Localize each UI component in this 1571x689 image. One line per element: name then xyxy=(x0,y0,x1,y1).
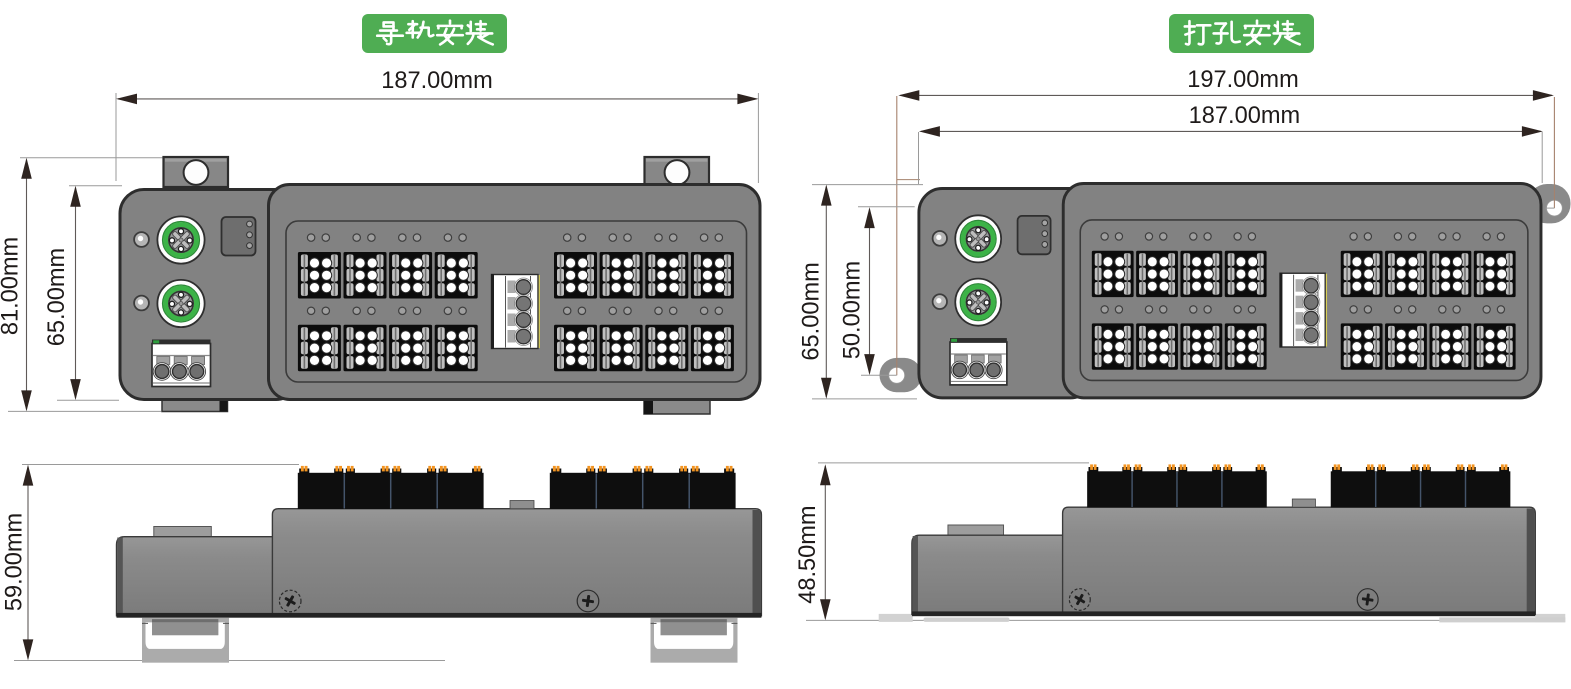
svg-text:65.00mm: 65.00mm xyxy=(799,262,825,360)
svg-text:197.00mm: 197.00mm xyxy=(1187,67,1298,93)
svg-text:187.00mm: 187.00mm xyxy=(381,68,492,94)
svg-text:187.00mm: 187.00mm xyxy=(1189,103,1300,129)
svg-text:59.00mm: 59.00mm xyxy=(2,513,28,611)
svg-text:48.50mm: 48.50mm xyxy=(795,505,821,603)
svg-text:81.00mm: 81.00mm xyxy=(0,237,24,335)
svg-text:50.00mm: 50.00mm xyxy=(840,261,866,359)
svg-text:65.00mm: 65.00mm xyxy=(44,248,70,346)
